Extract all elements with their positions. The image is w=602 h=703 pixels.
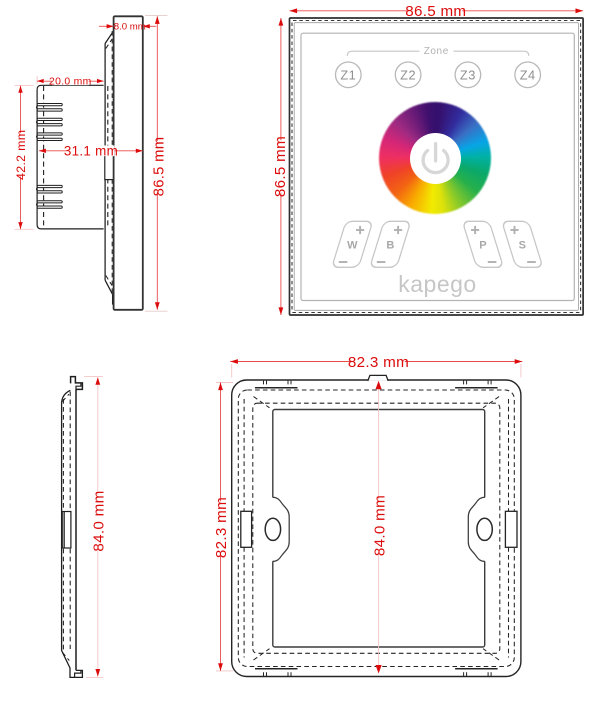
svg-text:86.5 mm: 86.5 mm [405,3,466,20]
svg-text:31.1 mm: 31.1 mm [64,144,118,159]
svg-text:P: P [479,240,486,252]
svg-text:Zone: Zone [424,46,449,57]
svg-text:86.5 mm: 86.5 mm [272,136,289,197]
svg-text:S: S [519,240,526,252]
svg-text:82.3 mm: 82.3 mm [348,354,409,371]
svg-text:Z1: Z1 [340,67,356,82]
svg-text:W: W [347,240,358,252]
svg-text:84.0 mm: 84.0 mm [371,495,388,556]
svg-text:Z4: Z4 [520,67,536,82]
svg-text:84.0 mm: 84.0 mm [90,490,107,551]
svg-text:42.2 mm: 42.2 mm [14,130,28,180]
svg-text:B: B [386,240,394,252]
svg-text:kapego: kapego [398,271,476,297]
svg-text:86.5 mm: 86.5 mm [151,137,167,197]
svg-text:82.3 mm: 82.3 mm [213,497,230,558]
svg-text:Z2: Z2 [400,67,416,82]
svg-text:8.0 mm: 8.0 mm [114,22,146,33]
svg-text:20.0 mm: 20.0 mm [49,77,92,88]
svg-text:Z3: Z3 [460,67,476,82]
